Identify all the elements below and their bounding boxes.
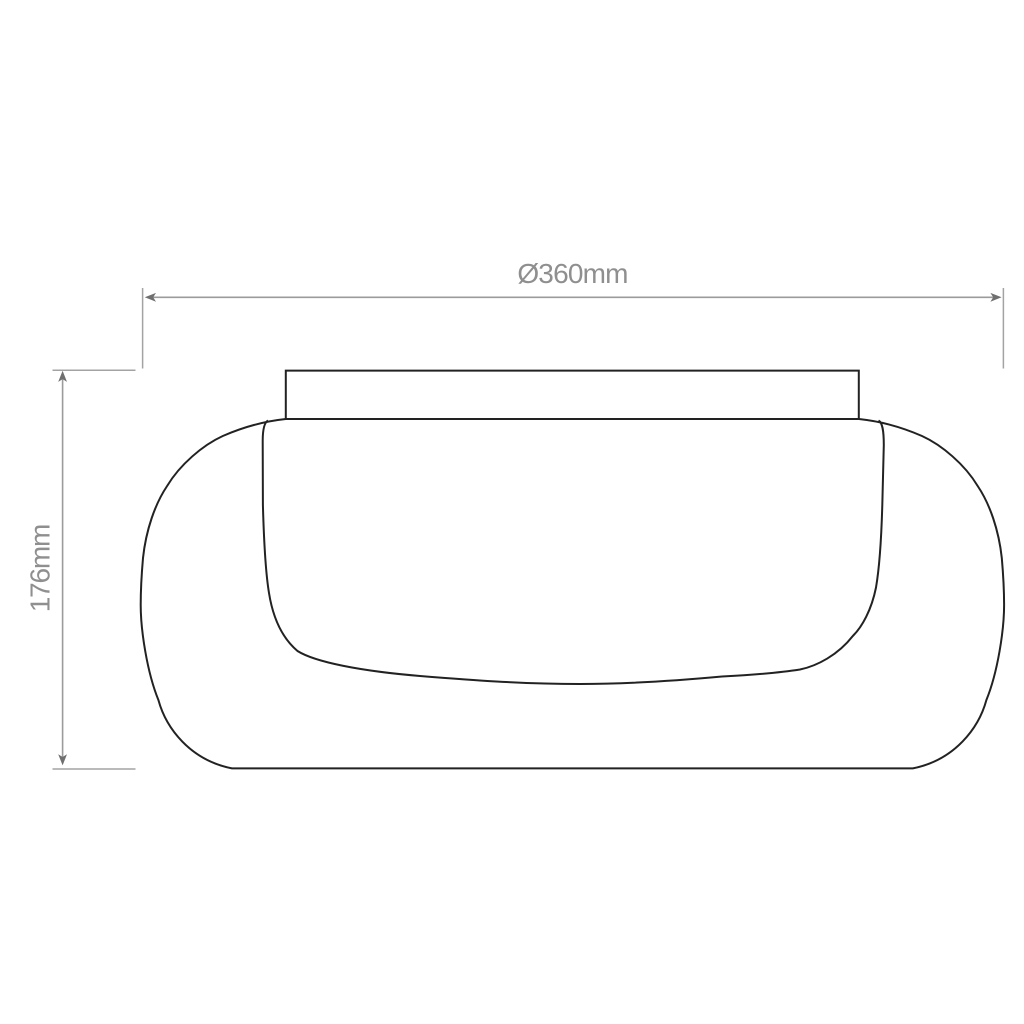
svg-text:176mm: 176mm: [25, 525, 56, 612]
svg-text:Ø360mm: Ø360mm: [517, 258, 627, 289]
